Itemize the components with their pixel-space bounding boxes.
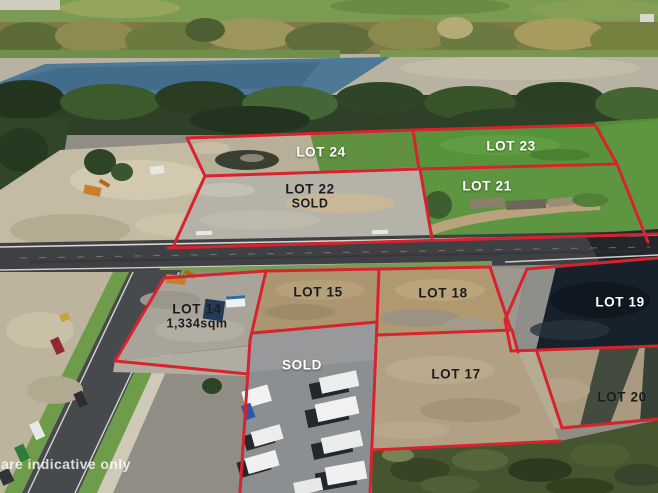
lot-22-ground (173, 168, 432, 247)
lot-21-ground (419, 164, 648, 243)
lot-19-ground (511, 258, 658, 351)
scene-svg (0, 0, 658, 493)
campervan-yard (236, 322, 377, 493)
aerial-photo: LOT 24 LOT 23 LOT 22 SOLD LOT 21 LOT 14 … (0, 0, 658, 493)
watermark-text: are indicative only (1, 456, 131, 472)
lot-18-ground (378, 267, 511, 335)
